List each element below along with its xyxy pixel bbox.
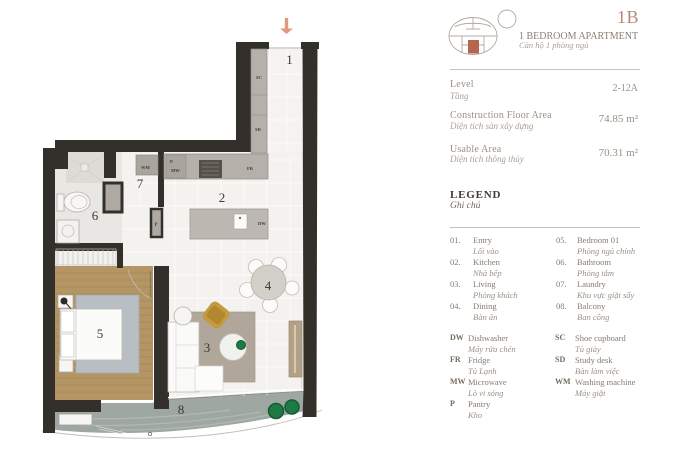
- svg-text:FR: FR: [247, 166, 254, 171]
- svg-text:P: P: [154, 223, 157, 228]
- svg-text:2: 2: [219, 190, 226, 205]
- svg-text:WM: WM: [141, 165, 151, 170]
- svg-text:5: 5: [97, 326, 104, 341]
- svg-text:4: 4: [265, 278, 272, 293]
- svg-text:7: 7: [137, 176, 144, 191]
- svg-text:SD: SD: [255, 127, 262, 132]
- svg-text:MW: MW: [171, 168, 180, 173]
- svg-text:6: 6: [92, 208, 99, 223]
- svg-text:3: 3: [204, 340, 211, 355]
- svg-text:8: 8: [178, 402, 185, 417]
- svg-text:DW: DW: [258, 221, 266, 226]
- svg-text:SC: SC: [256, 75, 262, 80]
- svg-text:P: P: [170, 159, 173, 164]
- svg-text:1: 1: [286, 52, 293, 67]
